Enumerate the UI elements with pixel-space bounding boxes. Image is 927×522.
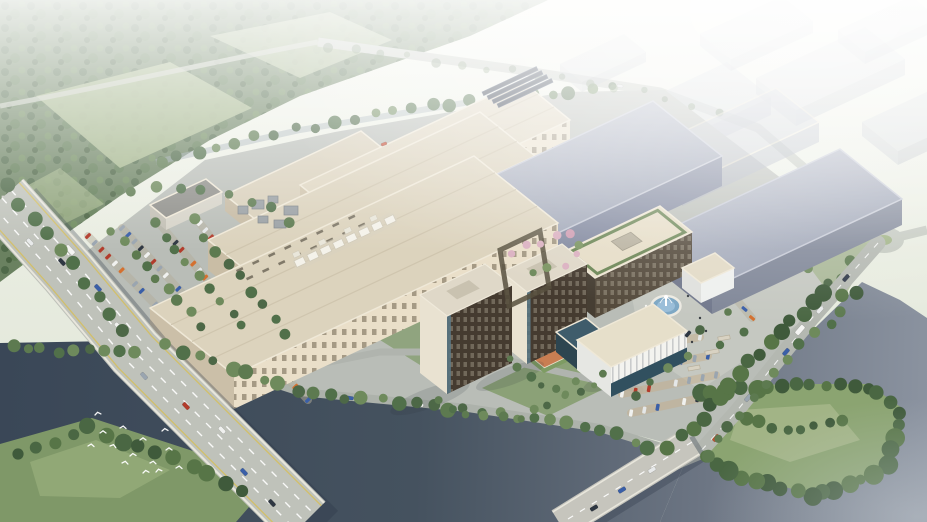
haze-bottom-right bbox=[450, 260, 927, 522]
aerial-campus-rendering bbox=[0, 0, 927, 522]
scene-canvas bbox=[0, 0, 927, 522]
